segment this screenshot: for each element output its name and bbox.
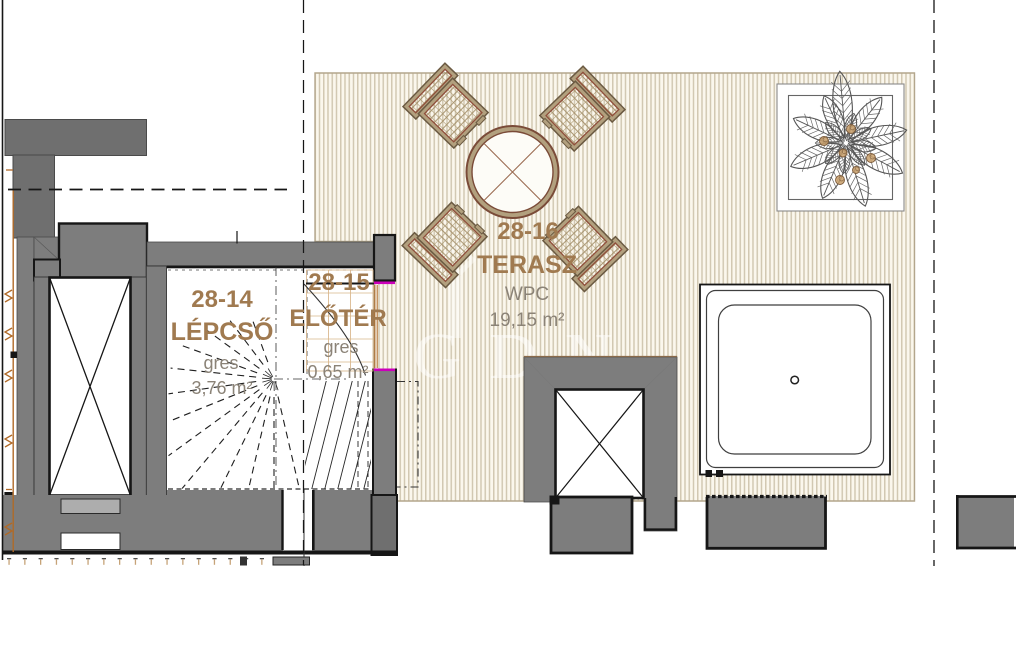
svg-text:gres: gres bbox=[323, 337, 358, 357]
svg-text:WPC: WPC bbox=[505, 284, 549, 305]
svg-text:19,15 m²: 19,15 m² bbox=[490, 310, 565, 331]
svg-text:0,65 m²: 0,65 m² bbox=[307, 362, 368, 382]
svg-text:LÉPCSŐ: LÉPCSŐ bbox=[171, 317, 274, 346]
svg-text:gres: gres bbox=[203, 353, 238, 373]
svg-text:28-16: 28-16 bbox=[497, 218, 558, 245]
svg-text:28-15: 28-15 bbox=[308, 269, 369, 296]
svg-text:TERASZ: TERASZ bbox=[477, 251, 577, 279]
svg-text:ELŐTÉR: ELŐTÉR bbox=[289, 304, 386, 332]
svg-text:3,76 m²: 3,76 m² bbox=[191, 378, 252, 398]
svg-text:28-14: 28-14 bbox=[191, 286, 253, 313]
